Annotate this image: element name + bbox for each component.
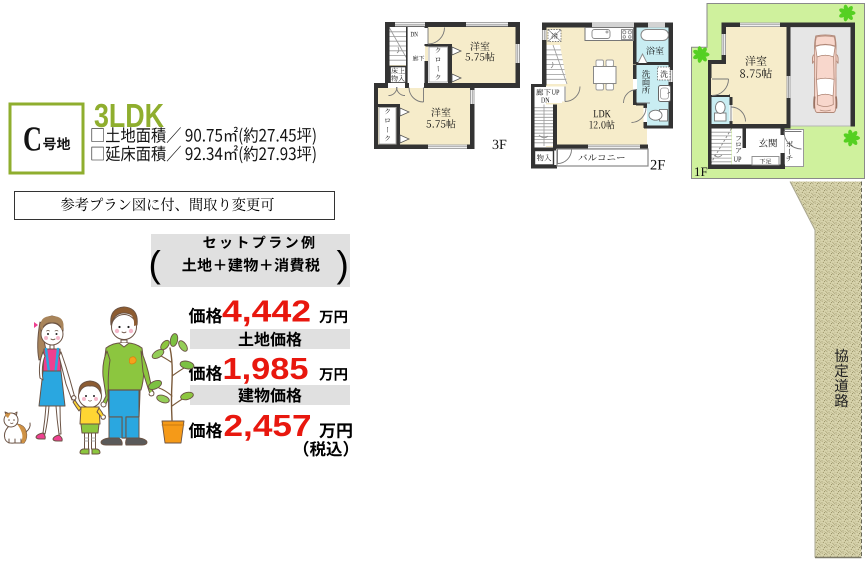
svg-text:2,457: 2,457 [224,408,312,443]
svg-text:1,985: 1,985 [223,351,309,386]
svg-text:(: ( [149,244,162,285]
svg-text:4,442: 4,442 [222,294,311,329]
svg-text:): ) [337,244,349,285]
